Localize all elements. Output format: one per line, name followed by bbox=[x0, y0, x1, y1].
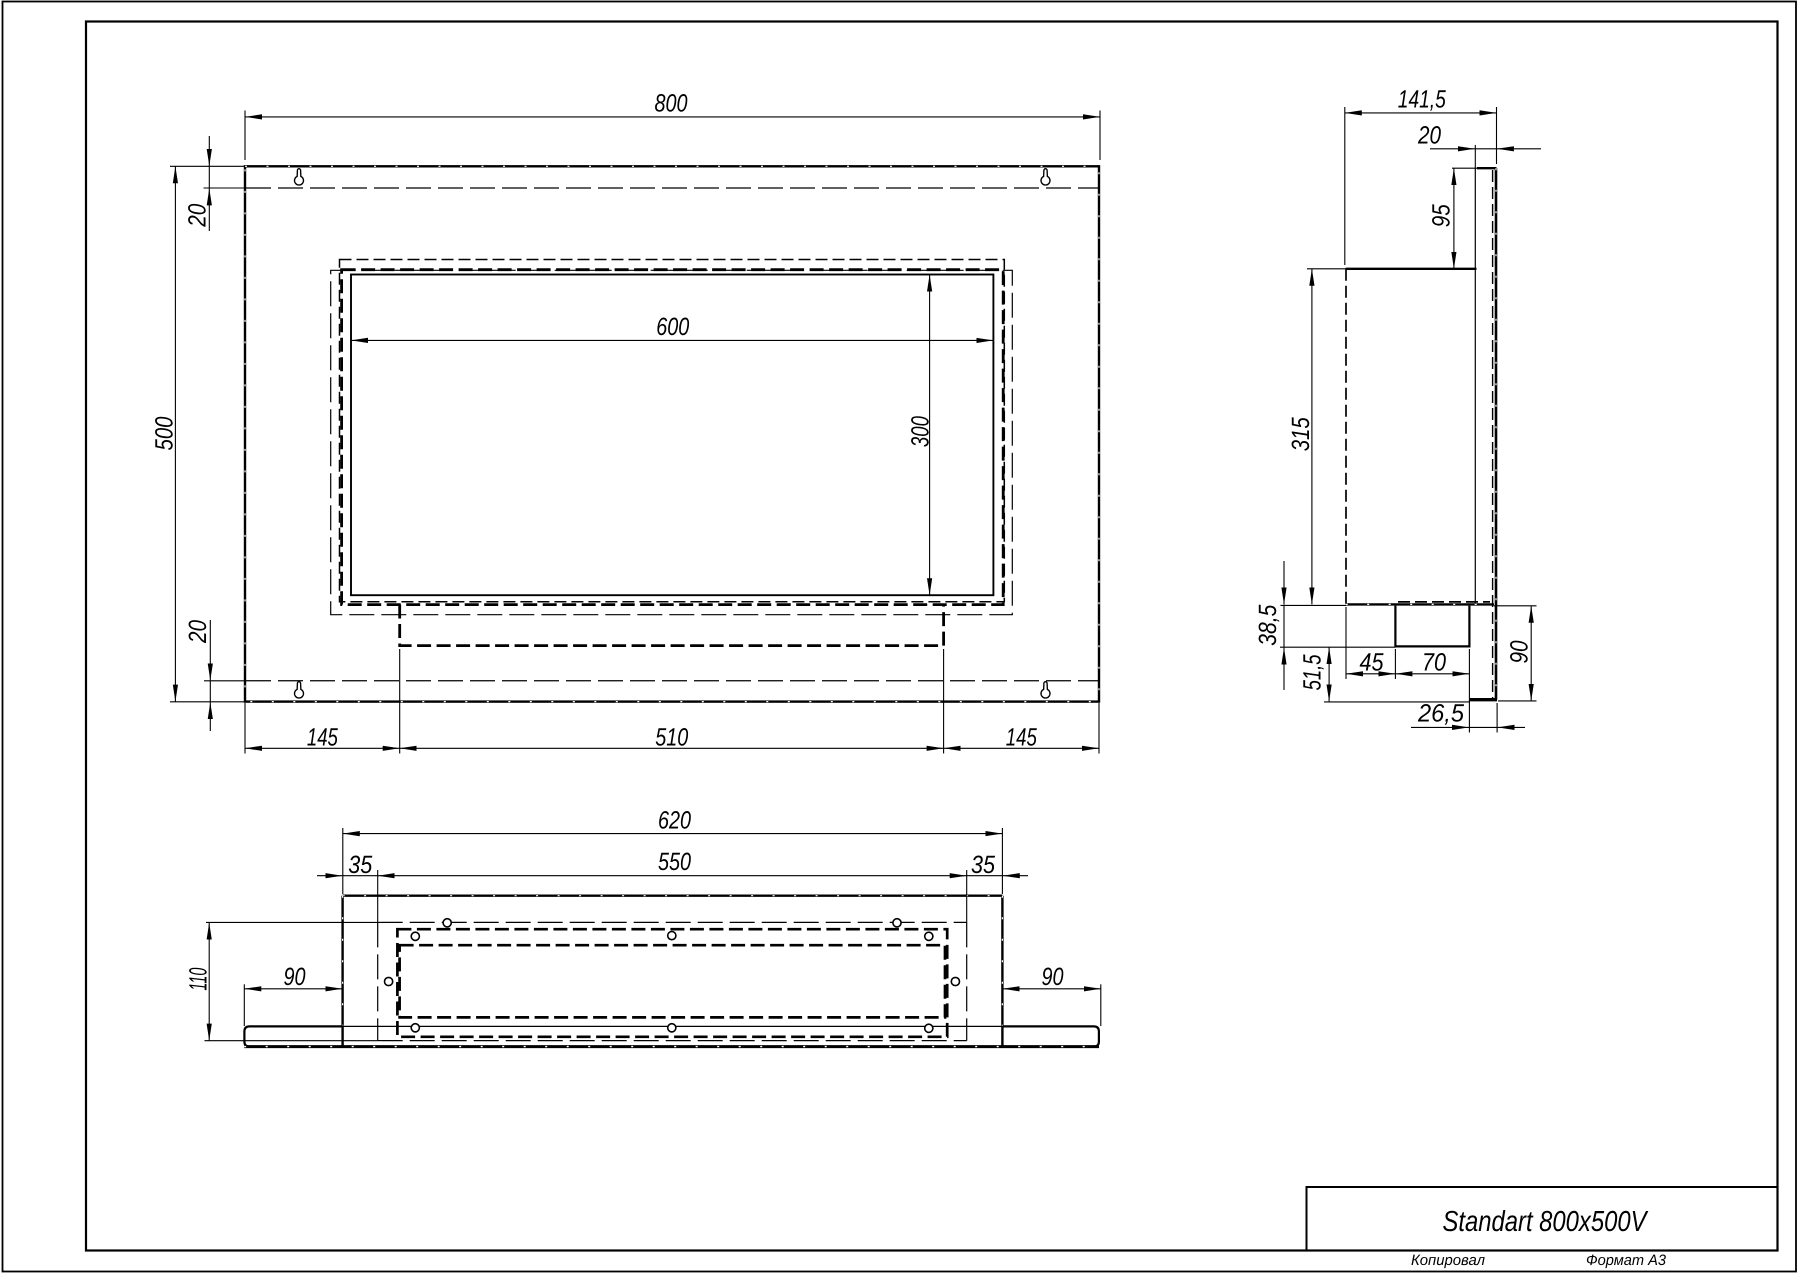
svg-text:145: 145 bbox=[307, 724, 338, 752]
svg-text:51,5: 51,5 bbox=[1298, 654, 1326, 690]
svg-text:500: 500 bbox=[150, 416, 178, 450]
svg-text:110: 110 bbox=[185, 968, 213, 991]
svg-text:315: 315 bbox=[1287, 417, 1315, 451]
svg-text:26,5: 26,5 bbox=[1417, 700, 1464, 728]
svg-text:800: 800 bbox=[655, 90, 688, 118]
svg-text:300: 300 bbox=[906, 416, 934, 447]
svg-text:90: 90 bbox=[1506, 640, 1534, 663]
svg-text:Standart 800x500V: Standart 800x500V bbox=[1443, 1206, 1649, 1238]
svg-text:Копировал: Копировал bbox=[1411, 1252, 1486, 1269]
svg-text:20: 20 bbox=[184, 620, 212, 644]
svg-text:510: 510 bbox=[655, 724, 688, 752]
svg-text:620: 620 bbox=[658, 807, 691, 835]
svg-text:20: 20 bbox=[184, 204, 212, 228]
svg-text:38,5: 38,5 bbox=[1254, 605, 1282, 646]
svg-text:95: 95 bbox=[1427, 204, 1455, 227]
svg-text:145: 145 bbox=[1006, 724, 1037, 752]
svg-text:90: 90 bbox=[284, 963, 306, 991]
svg-text:550: 550 bbox=[658, 848, 691, 876]
svg-text:70: 70 bbox=[1422, 649, 1446, 677]
svg-text:600: 600 bbox=[656, 313, 689, 341]
svg-text:35: 35 bbox=[348, 851, 372, 879]
svg-text:20: 20 bbox=[1417, 122, 1441, 150]
svg-text:45: 45 bbox=[1360, 649, 1384, 677]
svg-text:Формат А3: Формат А3 bbox=[1586, 1252, 1667, 1269]
svg-text:90: 90 bbox=[1042, 963, 1064, 991]
svg-text:141,5: 141,5 bbox=[1398, 86, 1446, 114]
svg-text:35: 35 bbox=[971, 851, 995, 879]
